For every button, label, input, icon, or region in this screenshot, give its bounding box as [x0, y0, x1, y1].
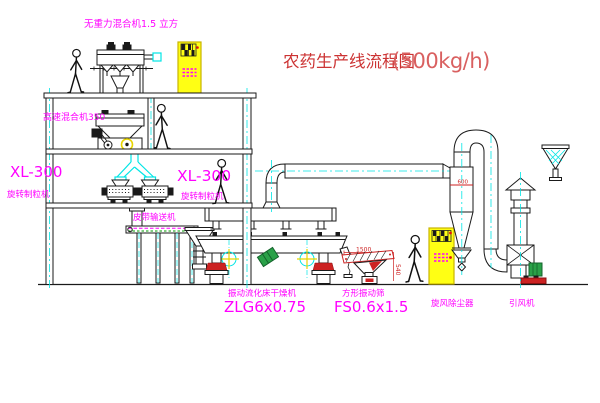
exhaust-duct — [255, 160, 462, 212]
control-cabinet-ground — [429, 228, 454, 284]
induced-draft-fan — [507, 245, 546, 284]
process-flow-diagram: 无重力混合机1.5 立方 农药生产线流程图 (500kg/h) 高速混合机350… — [0, 0, 600, 403]
floor2-beam — [46, 149, 252, 154]
vent-cap — [542, 145, 569, 181]
granulator-left — [102, 180, 138, 203]
person-icon — [68, 49, 84, 92]
dryer-model-label: ZLG6x0.75 — [224, 298, 306, 316]
screen-height-dim: 540 — [394, 264, 401, 276]
high-speed-mixer-label: 高速混合机350 — [43, 111, 105, 123]
vibrating-screen — [342, 251, 394, 284]
granulator-right-model: XL-300 — [177, 167, 231, 185]
indicator-light-icon — [196, 46, 199, 49]
belt-conveyor-label: 皮带输送机 — [133, 212, 176, 223]
building-column-right — [243, 88, 251, 288]
gravity-mixer-label: 无重力混合机1.5 立方 — [84, 18, 178, 30]
fluid-bed-dryer — [196, 208, 351, 284]
granulator-right — [137, 180, 173, 203]
granulator-right-name: 旋转制粒机 — [181, 191, 224, 202]
fan-motor — [529, 263, 542, 276]
screen-model-label: FS0.6x1.5 — [334, 298, 408, 316]
cyclone-separator — [450, 130, 507, 275]
dryer-foot-right — [312, 253, 335, 284]
plenum-hangers — [211, 221, 327, 229]
cyclone-dim: 600 — [458, 180, 469, 186]
cad-canvas: 无重力混合机1.5 立方 农药生产线流程图 (500kg/h) 高速混合机350… — [0, 0, 600, 403]
person-icon — [406, 236, 423, 282]
indicator-light-icon — [449, 232, 452, 235]
control-cabinet-top — [178, 42, 201, 93]
page-title-capacity: (500kg/h) — [392, 49, 490, 73]
granulator-left-name: 旋转制粒机 — [7, 189, 50, 200]
roof-beam — [44, 93, 256, 98]
y-duct — [115, 151, 156, 180]
person-icon — [154, 104, 170, 148]
gravity-free-mixer — [90, 43, 161, 94]
dryer-foot-left — [205, 253, 228, 284]
screen-length-dim: 1500 — [356, 247, 371, 254]
belt-conveyor — [126, 226, 198, 283]
fan-label: 引风机 — [509, 298, 535, 309]
granulator-left-model: XL-300 — [10, 163, 62, 181]
floor3-beam — [46, 203, 252, 208]
cyclone-label: 旋风除尘器 — [431, 298, 474, 309]
